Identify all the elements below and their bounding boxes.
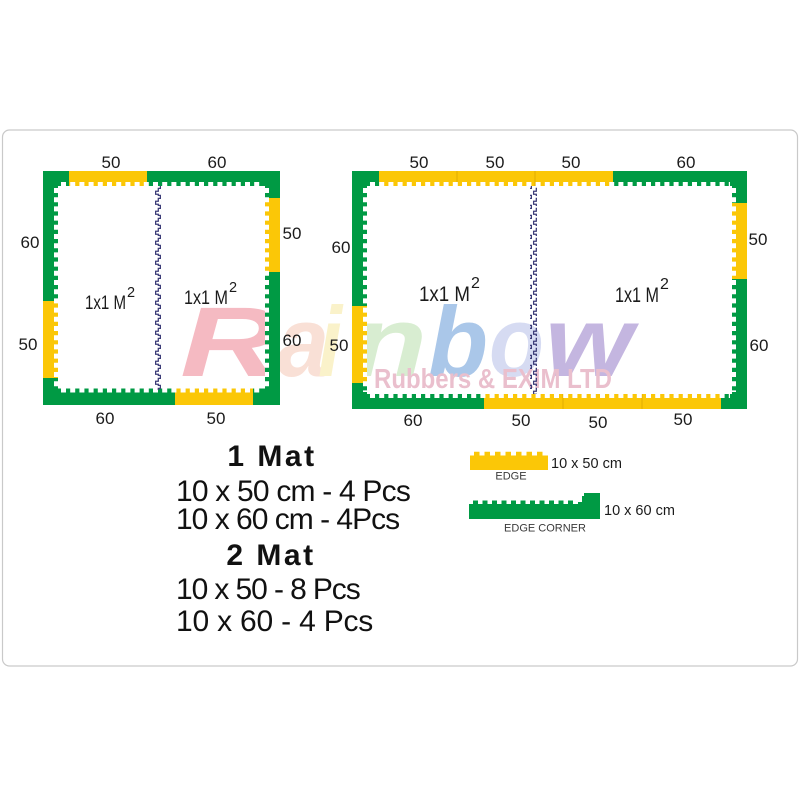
svg-text:EDGE CORNER: EDGE CORNER [504,523,586,535]
svg-text:50: 50 [410,153,429,172]
svg-text:10 x 50 - 8 Pcs: 10 x 50 - 8 Pcs [176,573,360,606]
svg-text:50: 50 [207,409,226,428]
svg-text:50: 50 [486,153,505,172]
svg-text:2: 2 [229,280,237,296]
svg-text:EDGE: EDGE [495,471,526,483]
svg-text:50: 50 [562,153,581,172]
svg-text:50: 50 [674,410,693,429]
svg-text:2 Mat: 2 Mat [226,539,315,572]
svg-text:50: 50 [102,153,121,172]
svg-text:10 x 50 cm: 10 x 50 cm [551,456,622,472]
svg-text:60: 60 [283,331,302,350]
svg-text:2: 2 [660,276,669,293]
svg-text:50: 50 [589,413,608,432]
svg-text:50: 50 [330,336,349,355]
svg-text:60: 60 [21,233,40,252]
svg-text:1x1 M: 1x1 M [85,293,126,314]
svg-text:60: 60 [404,411,423,430]
svg-text:50: 50 [512,411,531,430]
svg-text:10 x 60 - 4 Pcs: 10 x 60 - 4 Pcs [176,605,373,638]
svg-text:2: 2 [127,285,135,301]
svg-text:10 x 60 cm - 4Pcs: 10 x 60 cm - 4Pcs [176,503,399,536]
svg-text:2: 2 [471,275,480,292]
svg-text:1x1 M: 1x1 M [419,282,470,306]
svg-text:60: 60 [750,336,769,355]
svg-text:1 Mat: 1 Mat [227,440,316,473]
svg-text:1x1 M: 1x1 M [184,288,228,309]
svg-text:1x1 M: 1x1 M [615,283,659,307]
svg-text:60: 60 [96,409,115,428]
svg-text:60: 60 [208,153,227,172]
svg-text:60: 60 [332,238,351,257]
svg-text:10 x 60 cm: 10 x 60 cm [604,503,675,519]
svg-text:50: 50 [749,230,768,249]
svg-text:60: 60 [677,153,696,172]
svg-text:Rubbers & EXIM LTD: Rubbers & EXIM LTD [374,363,612,394]
svg-text:50: 50 [283,224,302,243]
svg-text:50: 50 [19,335,38,354]
